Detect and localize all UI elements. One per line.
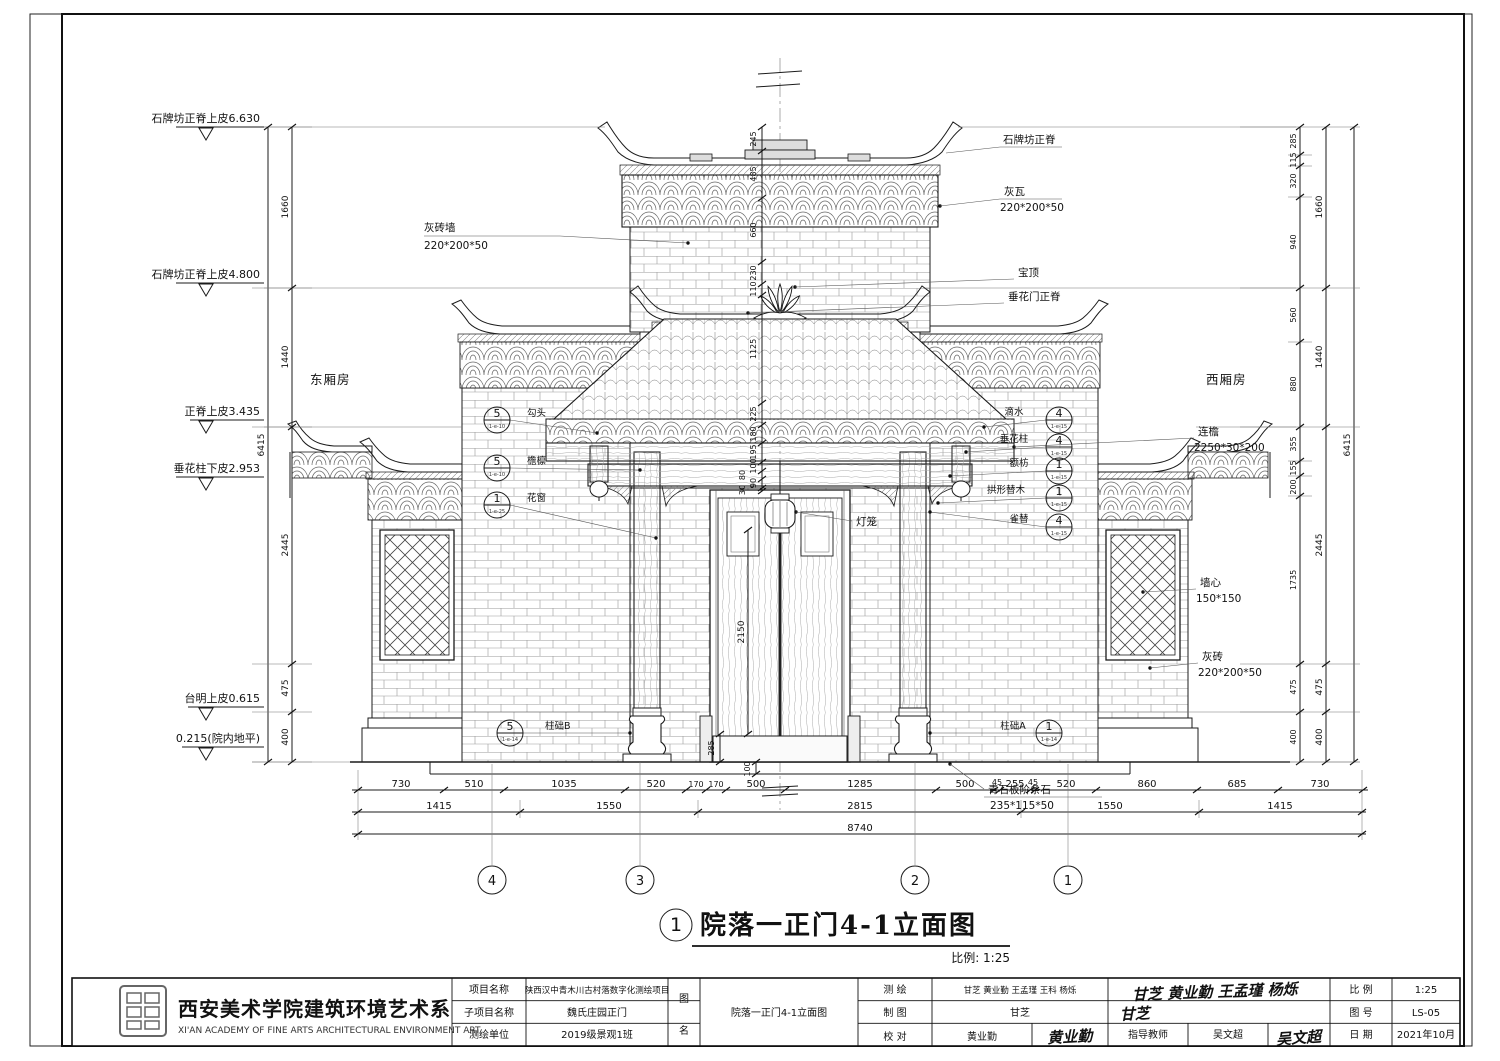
survey-names: 甘芝 黄业勤 王孟瑾 王科 杨烁 (964, 985, 1077, 996)
label-text: 220*200*50 (424, 240, 488, 252)
callout-label: 垂花柱 (1000, 433, 1029, 445)
check-name: 黄业勤 (967, 1030, 997, 1043)
label-text: 灰瓦 (1004, 185, 1026, 198)
dim-text: 8740 (847, 823, 872, 834)
lianyan-beam (546, 443, 1014, 461)
figure-label-2: 名 (679, 1024, 689, 1037)
scale-value: 1:25 (1415, 985, 1437, 996)
level-label: 台明上皮0.615 (185, 691, 261, 705)
dim-text: 520 (646, 779, 665, 790)
east-wing-roof-stub (288, 421, 372, 498)
callout-number: 5 (494, 407, 501, 420)
dim-text: 180 (749, 426, 758, 441)
dim-text: 30 (738, 485, 747, 495)
date-label: 日 期 (1349, 1029, 1372, 1041)
callout-label: 拱形替木 (987, 484, 1026, 496)
dim-text: 475 (281, 679, 291, 696)
dim-text: 245 (749, 131, 758, 146)
callout-ref: 1-e-15 (1051, 451, 1067, 457)
academy-logo (120, 986, 166, 1036)
callout-number: 5 (494, 455, 501, 468)
dim-text: 560 (1289, 307, 1298, 322)
org-name-en: XI'AN ACADEMY OF FINE ARTS ARCHITECTURAL… (178, 1026, 481, 1036)
dim-text: 940 (1289, 234, 1298, 249)
callout-number: 1 (1056, 458, 1063, 471)
page-title: 院落一正门4-1立面图 (700, 910, 977, 941)
label-text: 2250*30*200 (1194, 442, 1265, 454)
unit-label: 测绘单位 (469, 1028, 509, 1041)
grid-bubble-4: 4 (488, 874, 496, 889)
check-label: 校 对 (883, 1030, 906, 1043)
dim-text: 155 (1289, 460, 1298, 475)
callout-ref: 1-e-10 (489, 424, 505, 430)
dim-text: 2445 (1315, 534, 1325, 557)
dim-text: 1660 (281, 195, 291, 218)
callout-ref: 1-e-10 (489, 472, 505, 478)
subproject-name: 魏氏庄园正门 (567, 1006, 627, 1019)
grid-bubble-1: 1 (1064, 874, 1072, 889)
dim-text: 400 (1289, 729, 1298, 744)
dim-text: 1415 (426, 801, 451, 812)
dim-text: 1550 (1097, 801, 1122, 812)
dim-text: 1415 (1267, 801, 1292, 812)
callout-ref: 1-e-15 (1051, 502, 1067, 508)
dim-text: 225 (749, 406, 758, 421)
dim-text: 1735 (1289, 570, 1298, 590)
dim-text: 860 (1137, 779, 1156, 790)
dim-text: 400 (281, 728, 291, 745)
level-label: 石牌坊正脊上皮4.800 (152, 267, 261, 281)
dim-text: 400 (1315, 728, 1325, 745)
figure-name: 院落一正门4-1立面图 (731, 1006, 827, 1019)
callout-number: 4 (1056, 434, 1063, 447)
label-text: 220*200*50 (1198, 667, 1262, 679)
dim-text: 195 (749, 444, 758, 459)
callout-label: 滴水 (1004, 406, 1024, 418)
project-label: 项目名称 (469, 983, 509, 996)
level-markers: 石牌坊正脊上皮6.630 石牌坊正脊上皮4.800 正脊上皮3.435 垂花柱下… (152, 111, 265, 760)
east-wing-label: 东厢房 (310, 372, 351, 387)
dim-text: 1660 (1315, 195, 1325, 218)
dim-text: 685 (1227, 779, 1246, 790)
dim-text: 110 (749, 281, 758, 296)
subproject-label: 子项目名称 (464, 1006, 514, 1019)
right-outer-wall (1088, 438, 1200, 762)
dim-text: 1440 (1315, 345, 1325, 368)
callout-ref: 1-e-14 (502, 737, 518, 743)
draft-name: 甘芝 (1010, 1006, 1030, 1019)
callout-ref: 1-e-15 (1051, 424, 1067, 430)
dim-text: 730 (391, 779, 410, 790)
grid-bubble-2: 2 (911, 874, 919, 889)
survey-label: 测 绘 (883, 983, 906, 996)
dim-text: 100 (743, 761, 752, 776)
signature-check: 黄业勤 (1047, 1027, 1095, 1047)
figure-label-1: 图 (679, 993, 689, 1005)
label-text: 墙心 (1200, 576, 1222, 589)
dim-text: 520 (1056, 779, 1075, 790)
advisor-label: 指导教师 (1128, 1028, 1168, 1041)
drawing-sheet: 1660 1440 2445 475 400 6415 285 115 320 … (0, 0, 1500, 1061)
grid-bubble-3: 3 (636, 874, 644, 889)
dim-text: 485 (749, 166, 758, 181)
drawing-title: 1 院落一正门4-1立面图 比例: 1:25 (660, 909, 1010, 965)
dim-text: 2445 (281, 534, 291, 557)
org-name-cn: 西安美术学院建筑环境艺术系 (178, 997, 451, 1021)
dim-text: 100 (749, 458, 758, 473)
dim-text: 320 (1289, 173, 1298, 188)
level-label: 正脊上皮3.435 (185, 404, 261, 418)
level-label: 垂花柱下皮2.953 (174, 461, 261, 475)
label-text: 灯笼 (856, 515, 877, 528)
callout-number: 1 (494, 492, 501, 505)
level-label: 石牌坊正脊上皮6.630 (152, 111, 261, 125)
project-name: 陕西汉中青木川古村落数字化测绘项目 (525, 985, 670, 996)
dim-text: 510 (464, 779, 483, 790)
dim-text: 170 (688, 780, 703, 789)
elevation-drawing: 1660 1440 2445 475 400 6415 285 115 320 … (0, 0, 1500, 1061)
callout-ref: 1-e-15 (1051, 531, 1067, 537)
sheet-no-value: LS-05 (1412, 1008, 1440, 1019)
sheet-no-label: 图 号 (1349, 1007, 1372, 1019)
label-text: 235*115*50 (990, 800, 1054, 812)
label-text: 垂花门正脊 (1008, 290, 1061, 303)
dim-text: 2815 (847, 801, 872, 812)
callout-label: 花窗 (527, 492, 546, 504)
dim-text: 6415 (1343, 434, 1353, 457)
callout-number: 5 (507, 720, 514, 733)
callout-ref: 1-e-15 (1051, 475, 1067, 481)
dim-text: 285 (707, 740, 716, 755)
title-scale: 比例: 1:25 (951, 951, 1010, 965)
callout-ref: 1-e-14 (1041, 737, 1057, 743)
dim-text: 880 (1289, 376, 1298, 391)
dim-text: 1440 (281, 345, 291, 368)
dim-text: 1125 (749, 339, 758, 359)
dim-text: 500 (955, 779, 974, 790)
unit-name: 2019级景观1班 (561, 1029, 633, 1041)
dim-text: 660 (749, 222, 758, 237)
callout-number: 4 (1056, 514, 1063, 527)
label-text: 220*200*50 (1000, 202, 1064, 214)
dim-text: 230 (749, 265, 758, 280)
dim-text: 500 (746, 779, 765, 790)
bottom-dimension-rows: 730 510 1035 520 170 170 500 1285 500 45… (352, 770, 1368, 840)
signature-draft: 甘芝 (1119, 1004, 1153, 1024)
title-block: 西安美术学院建筑环境艺术系 XI'AN ACADEMY OF FINE ARTS… (72, 978, 1460, 1049)
callout-label: 檐檩 (527, 455, 547, 467)
callout-label: 雀替 (1009, 513, 1029, 525)
dim-text: 80 (738, 470, 747, 480)
advisor-name: 吴文超 (1213, 1028, 1243, 1041)
dim-text: 1550 (596, 801, 621, 812)
dim-text: 170 (708, 780, 723, 789)
label-text: 灰砖墙 (424, 221, 456, 234)
label-ridge-top: 石牌坊正脊 (946, 133, 1062, 153)
dim-text: 1035 (551, 779, 576, 790)
signature-advisor: 吴文超 (1276, 1027, 1325, 1048)
level-label: 0.215(院内地平) (176, 731, 260, 745)
dim-text: 475 (1315, 678, 1325, 695)
dim-text: 90 (749, 478, 758, 488)
callout-number: 4 (1056, 407, 1063, 420)
callout-number: 1 (1046, 720, 1053, 733)
finial-marker (756, 71, 802, 87)
dim-text: 2150 (737, 620, 747, 643)
dim-text: 730 (1310, 779, 1329, 790)
callout-label: 额枋 (1009, 457, 1029, 469)
label-text: 青石板阶条石 (988, 783, 1051, 796)
left-outer-wall (360, 438, 472, 762)
callout-label: 勾头 (527, 407, 546, 419)
callout-number: 1 (1056, 485, 1063, 498)
label-text: 连檐 (1198, 425, 1219, 438)
draft-label: 制 图 (883, 1006, 906, 1019)
dim-text: 475 (1289, 679, 1298, 694)
label-grey-tile: 灰瓦 220*200*50 (938, 185, 1064, 214)
callout-label: 柱础B (545, 720, 571, 732)
west-wing-label: 西厢房 (1206, 372, 1247, 387)
dim-text: 1285 (847, 779, 872, 790)
dim-text: 285 (1289, 133, 1298, 148)
label-text: 灰砖 (1202, 650, 1224, 663)
dim-text: 200 (1289, 479, 1298, 494)
label-text: 150*150 (1196, 593, 1241, 605)
dim-text: 355 (1289, 436, 1298, 451)
label-text: 石牌坊正脊 (1003, 133, 1056, 146)
scale-label: 比 例 (1349, 983, 1372, 996)
door-threshold (713, 736, 847, 762)
date-value: 2021年10月 (1397, 1028, 1455, 1041)
callout-ref: 1-e-25 (489, 509, 505, 515)
title-number: 1 (670, 914, 682, 936)
dim-text: 6415 (257, 434, 267, 457)
label-text: 宝顶 (1018, 266, 1040, 279)
dim-text: 115 (1289, 152, 1298, 167)
callout-label: 柱础A (1000, 720, 1026, 732)
